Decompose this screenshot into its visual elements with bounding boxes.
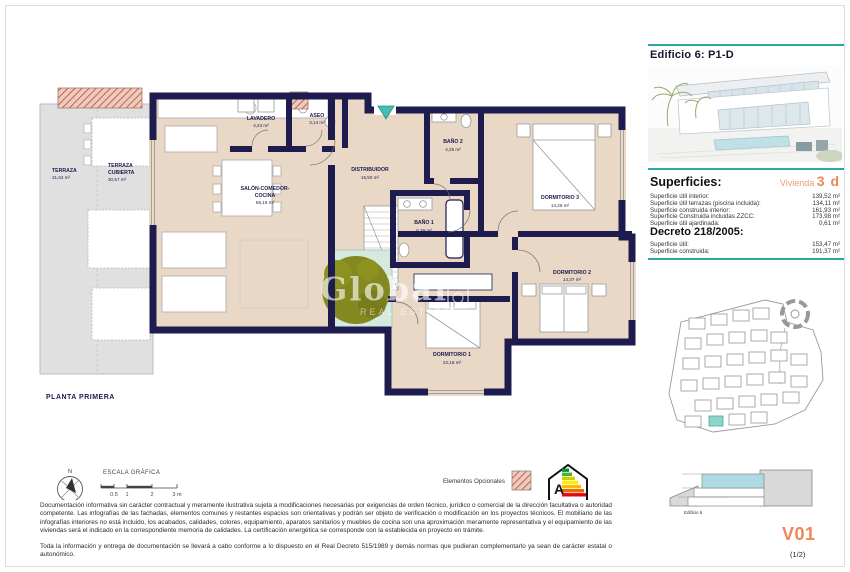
optional-pergola-hatch <box>58 88 142 108</box>
room-label-dormitorio1: DORMITORIO 1 <box>433 352 471 358</box>
row-value: 153,47 m² <box>812 241 840 248</box>
version-label: V01 <box>782 524 816 545</box>
room-label-aseo: ASEO <box>310 113 325 119</box>
sidebar: Edificio 6: P1-D <box>646 0 846 572</box>
optional-elements-swatch <box>512 471 531 490</box>
optional-elements-legend: Elementos Opcionales <box>443 471 531 490</box>
floor-plan: TERRAZA 31,64 m² TERRAZA CUBIERTA 30,57 … <box>0 0 650 500</box>
elevation-caption: Edificio 6 <box>684 510 703 515</box>
room-area-distribuidor: 15,50 m² <box>361 175 380 180</box>
row-value: 0,61 m² <box>819 221 840 228</box>
room-label-terraza-cubierta-1: TERRAZA <box>108 163 133 169</box>
optional-elements-label: Elementos Opcionales <box>443 478 505 485</box>
room-area-dormitorio3: 14,26 m² <box>551 203 570 208</box>
elevation-diagram: Edificio 6 <box>668 462 828 516</box>
disclaimer-paragraph-2: Toda la información y entrega de documen… <box>40 543 612 560</box>
disclaimer-paragraph-1: Documentación informativa sin carácter c… <box>40 502 612 536</box>
page-indicator: (1/2) <box>790 550 805 559</box>
decreto-row: Superficie construida:191,37 m² <box>650 248 840 255</box>
room-area-aseo: 3,14 m² <box>309 120 325 125</box>
room-label-terraza-cubierta-2: CUBIERTA <box>108 170 135 176</box>
room-label-distribuidor: DISTRIBUIDOR <box>351 167 389 173</box>
divider-superficies <box>648 168 844 170</box>
vivienda-type-label: Vivienda 3 d <box>780 173 840 189</box>
room-area-terraza-cubierta: 30,57 m² <box>108 177 127 182</box>
room-area-lavadero: 4,24 m² <box>253 123 269 128</box>
plan-title: PLANTA PRIMERA <box>46 394 115 401</box>
scale-tick-3: 3 m <box>172 492 182 498</box>
vivienda-type-value: 3 d <box>817 173 840 189</box>
scale-tick-1: 1 <box>125 492 128 498</box>
superficies-table: Superficie útil interior:139,52 m² Super… <box>650 194 840 228</box>
room-label-dormitorio3: DORMITORIO 3 <box>541 195 579 201</box>
scale-bar: ESCALA GRÁFICA 0.5 1 2 3 m <box>101 469 182 498</box>
scale-tick-05: 0.5 <box>110 492 118 498</box>
decreto-table: Superficie útil:153,47 m² Superficie con… <box>650 241 840 255</box>
watermark-line1: Global <box>320 270 448 308</box>
room-area-bano2: 4,25 m² <box>445 147 461 152</box>
decreto-heading: Decreto 218/2005: <box>650 226 744 238</box>
villa-render-image <box>648 66 842 162</box>
room-label-dormitorio2: DORMITORIO 2 <box>553 270 591 276</box>
room-label-bano1: BAÑO 1 <box>414 219 434 226</box>
room-area-dormitorio2: 14,37 m² <box>563 277 582 282</box>
row-value: 191,37 m² <box>812 248 840 255</box>
room-label-salon-1: SALÓN-COMEDOR- <box>241 184 290 192</box>
scale-title: ESCALA GRÁFICA <box>103 469 160 476</box>
compass-north-label: N <box>68 469 72 475</box>
room-area-salon: 56,19 m² <box>256 200 275 205</box>
divider-top <box>648 44 844 46</box>
row-label: Superficie útil: <box>650 241 689 248</box>
energy-label-icon: A <box>549 465 587 500</box>
brochure-page: TERRAZA 31,64 m² TERRAZA CUBIERTA 30,57 … <box>0 0 850 572</box>
room-label-salon-2: COCINA <box>255 193 276 199</box>
room-label-terraza: TERRAZA <box>52 168 77 174</box>
scale-tick-2: 2 <box>150 492 153 498</box>
building-title: Edificio 6: P1-D <box>650 49 734 61</box>
room-area-bano1: 6,39 m² <box>416 228 432 233</box>
elevation-highlight-floor <box>702 474 764 488</box>
watermark-line2: REAL ESTATE <box>360 307 452 317</box>
vivienda-word: Vivienda <box>780 178 814 188</box>
terrace-area <box>40 104 153 374</box>
divider-bottom <box>648 258 844 260</box>
compass-icon: N <box>58 469 83 500</box>
row-label: Superficie construida: <box>650 248 710 255</box>
decreto-row: Superficie útil:153,47 m² <box>650 241 840 248</box>
room-label-bano2: BAÑO 2 <box>443 138 463 145</box>
room-label-lavadero: LAVADERO <box>247 116 275 122</box>
room-area-terraza: 31,64 m² <box>52 175 71 180</box>
energy-letter: A <box>554 481 564 497</box>
superficies-heading: Superficies: <box>650 175 722 189</box>
site-plan-map <box>655 292 840 454</box>
room-area-dormitorio1: 22,18 m² <box>443 360 462 365</box>
site-plan-highlighted-plot <box>709 416 723 426</box>
